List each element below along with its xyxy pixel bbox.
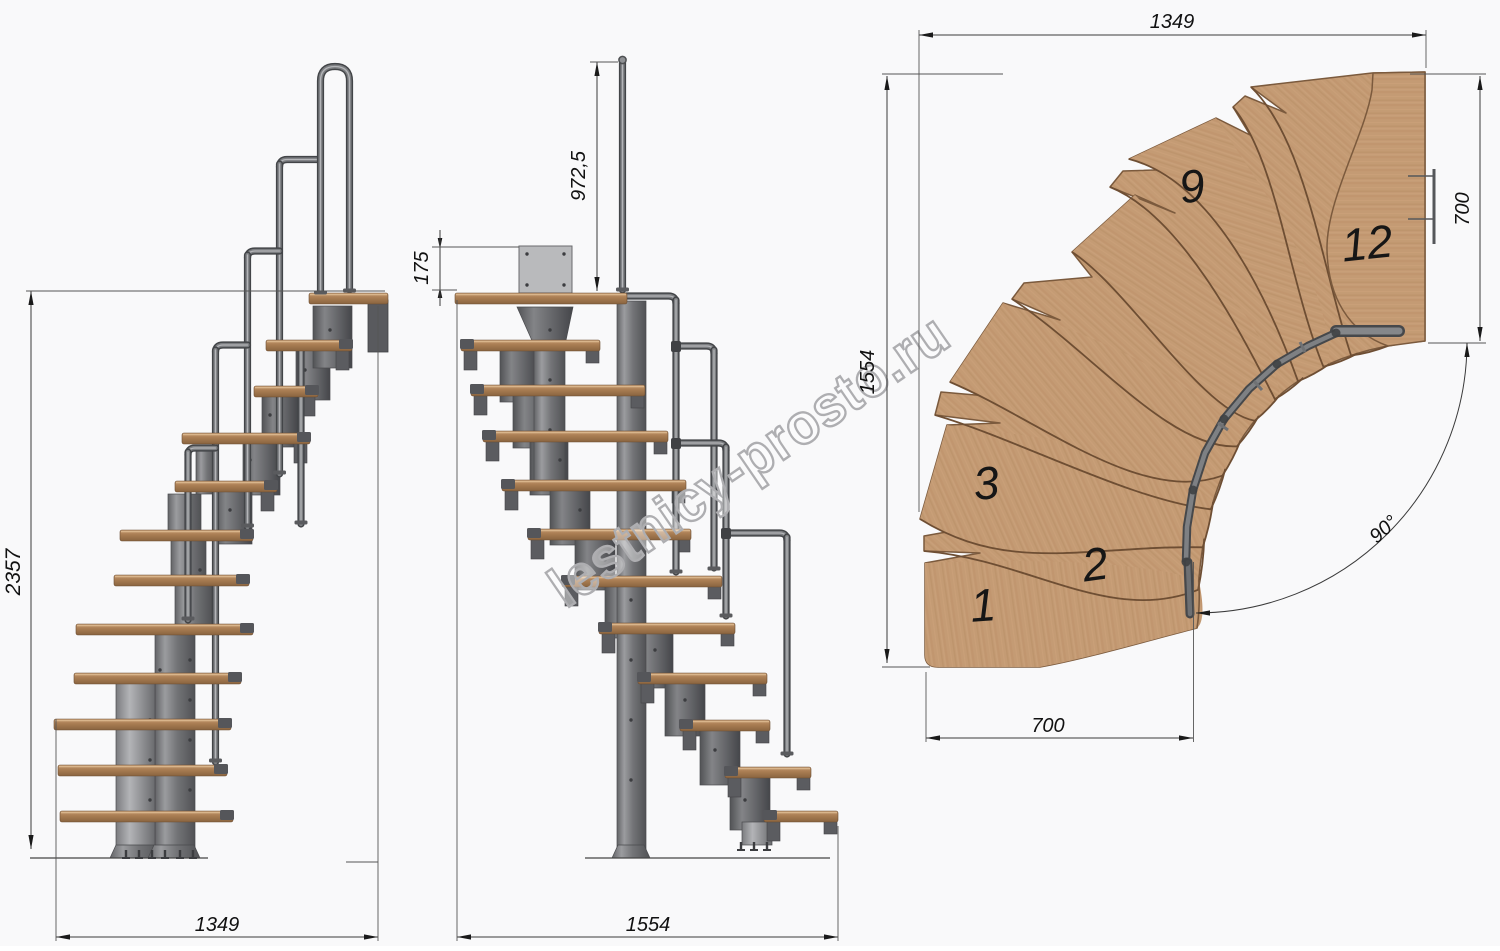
- svg-text:1554: 1554: [857, 350, 879, 395]
- svg-text:12: 12: [1339, 214, 1395, 271]
- svg-text:1349: 1349: [195, 914, 240, 936]
- svg-text:1349: 1349: [1150, 11, 1195, 33]
- svg-text:972,5: 972,5: [568, 150, 590, 201]
- svg-text:1: 1: [968, 578, 997, 632]
- svg-text:1554: 1554: [626, 914, 671, 936]
- svg-text:175: 175: [411, 250, 433, 284]
- svg-text:2357: 2357: [2, 547, 25, 596]
- svg-text:700: 700: [1452, 192, 1474, 225]
- svg-text:700: 700: [1031, 715, 1064, 737]
